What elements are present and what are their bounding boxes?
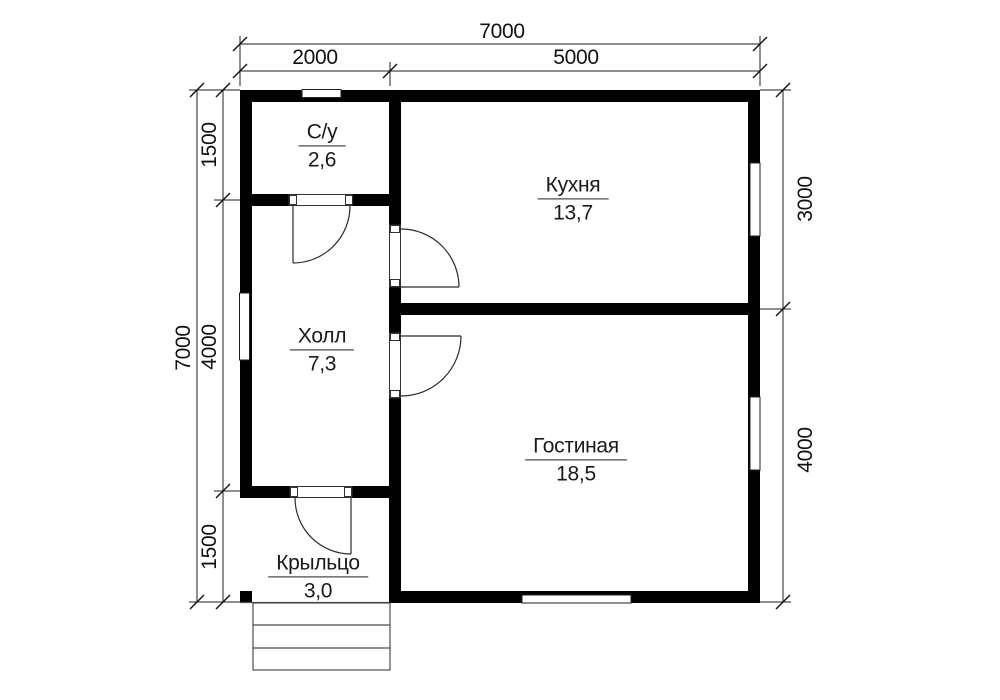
dim-label-right-seg1: 3000 [794, 176, 818, 222]
door-jamb [391, 334, 400, 341]
dim-label-top-total: 7000 [479, 20, 525, 44]
window-living-east [750, 397, 760, 470]
door-jamb [391, 226, 400, 233]
dim-label-top-seg2: 5000 [553, 46, 599, 70]
window-hall-west [240, 293, 250, 360]
door-opening-entrance [290, 487, 352, 498]
dim-label-right-seg2: 4000 [794, 427, 818, 473]
door-opening-living [390, 333, 401, 398]
room-name-kitchen: Кухня [538, 173, 609, 199]
dim-label-left-seg1: 1500 [198, 122, 222, 168]
room-label-porch: Крыльцо 3,0 [268, 551, 368, 602]
room-area-kitchen: 13,7 [538, 202, 609, 225]
dimension-ticks [190, 37, 790, 609]
room-name-porch: Крыльцо [268, 551, 368, 577]
room-name-living-room: Гостиная [525, 434, 627, 460]
door-jamb [391, 391, 400, 398]
room-name-hall: Холл [290, 324, 354, 350]
door-jamb [291, 488, 298, 497]
door-arc-kitchen [401, 229, 459, 287]
door-swings [293, 206, 461, 554]
door-arc-living [401, 336, 461, 396]
door-opening-bathroom [289, 195, 352, 206]
room-label-kitchen: Кухня 13,7 [538, 173, 609, 224]
room-area-bathroom: 2,6 [299, 149, 346, 172]
room-area-living-room: 18,5 [525, 463, 627, 486]
porch-steps [240, 603, 390, 671]
window-kitchen-east [750, 163, 760, 236]
dim-label-left-seg3: 1500 [198, 524, 222, 570]
wall-kitchen-living [389, 303, 760, 315]
door-jamb [346, 196, 353, 205]
room-area-porch: 3,0 [268, 580, 368, 603]
floor-plan-page: С/у 2,6 Кухня 13,7 Холл 7,3 Гостиная 18,… [0, 0, 1000, 700]
door-arc-entrance [295, 498, 351, 554]
room-label-living-room: Гостиная 18,5 [525, 434, 627, 485]
steps-outline [253, 603, 390, 670]
door-jamb [345, 488, 352, 497]
dimension-lines [189, 36, 791, 602]
door-jamb [290, 196, 297, 205]
door-jamb [391, 280, 400, 287]
door-opening-kitchen [390, 225, 401, 287]
dim-label-left-seg2: 4000 [198, 324, 222, 370]
room-area-hall: 7,3 [290, 353, 354, 376]
porch-corner-post [240, 591, 252, 603]
window-living-south [522, 595, 631, 603]
room-name-bathroom: С/у [299, 120, 346, 146]
dim-label-left-total: 7000 [172, 325, 196, 371]
room-label-hall: Холл 7,3 [290, 324, 354, 375]
room-label-bathroom: С/у 2,6 [299, 120, 346, 171]
window-bathroom-north [302, 90, 341, 98]
door-arc-bathroom [293, 206, 350, 263]
dim-label-top-seg1: 2000 [292, 46, 338, 70]
floor-plan-drawing [0, 0, 1000, 700]
